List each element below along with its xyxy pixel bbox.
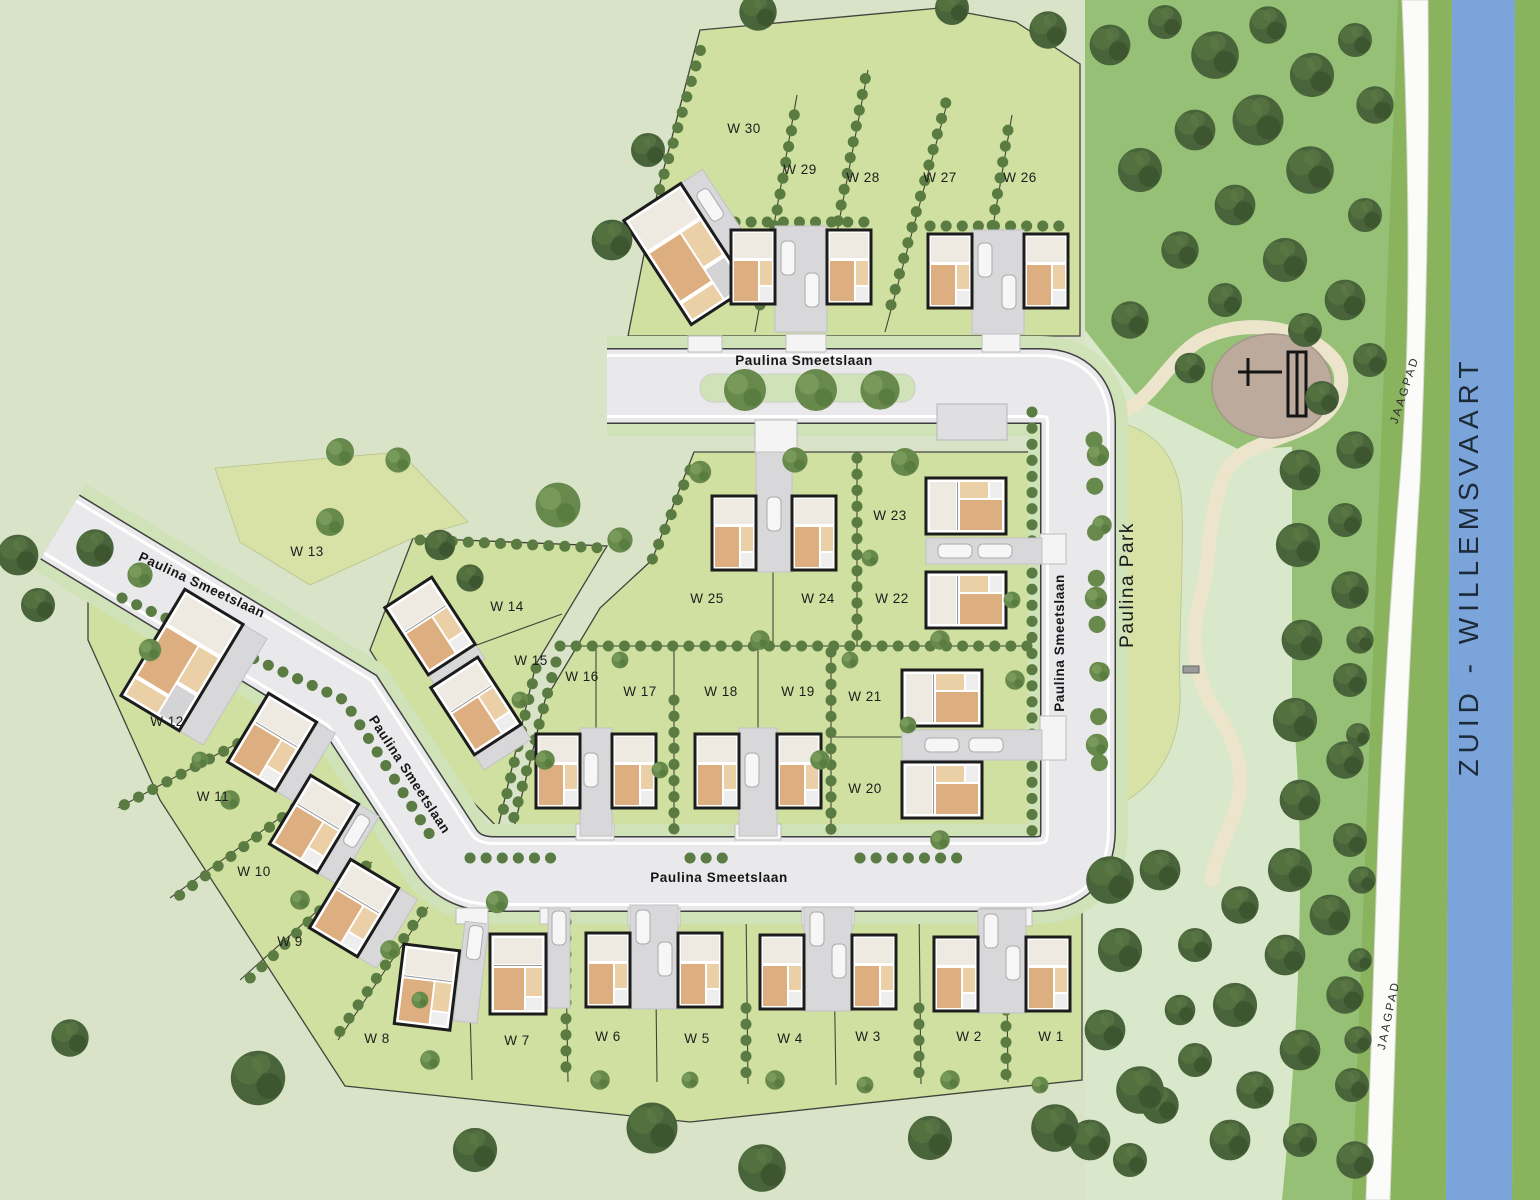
plot-label-w21: W 21 [848,689,882,704]
plot-label-w6: W 6 [595,1029,621,1044]
plot-label-w12: W 12 [150,714,184,729]
canal-east-bank [1512,0,1540,1200]
street-label-top: Paulina Smeetslaan [735,353,873,368]
plot-label-w10: W 10 [237,864,271,879]
plot-label-w7: W 7 [504,1033,530,1048]
plot-label-w22: W 22 [875,591,909,606]
plot-label-w19: W 19 [781,684,815,699]
plot-label-w15: W 15 [514,653,548,668]
plot-label-w2: W 2 [956,1029,982,1044]
plot-label-w25: W 25 [690,591,724,606]
site-plan-svg: W 1 W 2 W 3 W 4 W 5 W 6 W 7 W 8 W 9 W 10… [0,0,1540,1200]
plot-label-w9: W 9 [277,934,303,949]
street-label-east: Paulina Smeetslaan [1052,574,1067,712]
plot-label-w16: W 16 [565,669,599,684]
plot-label-w4: W 4 [777,1031,803,1046]
park-bench [1183,666,1199,673]
plot-label-w30: W 30 [727,121,761,136]
plot-label-w29: W 29 [783,162,817,177]
plot-label-w1: W 1 [1038,1029,1064,1044]
park-label: Paulina Park [1117,522,1138,648]
plot-label-w27: W 27 [923,170,957,185]
plot-label-w18: W 18 [704,684,738,699]
site-plan: W 1 W 2 W 3 W 4 W 5 W 6 W 7 W 8 W 9 W 10… [0,0,1540,1200]
plot-label-w26: W 26 [1003,170,1037,185]
plot-label-w23: W 23 [873,508,907,523]
plot-label-w20: W 20 [848,781,882,796]
plot-label-w28: W 28 [846,170,880,185]
plot-label-w11: W 11 [197,789,230,804]
street-label-south: Paulina Smeetslaan [650,870,788,885]
plot-label-w17: W 17 [623,684,657,699]
plot-label-w14: W 14 [490,599,524,614]
parking-bay [937,404,1007,440]
plot-label-w13: W 13 [290,544,324,559]
plot-label-w8: W 8 [364,1031,390,1046]
plot-label-w3: W 3 [855,1029,881,1044]
plot-label-w24: W 24 [801,591,835,606]
canal-label: ZUID - WILLEMSVAART [1453,355,1484,776]
plot-label-w5: W 5 [684,1031,710,1046]
